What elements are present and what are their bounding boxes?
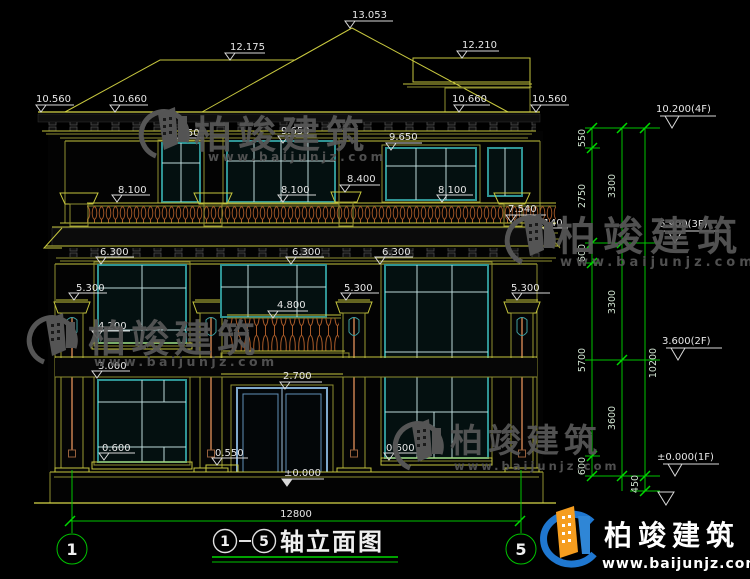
floor-level-2f: 3.600(2F) bbox=[662, 336, 711, 347]
window-3f-end bbox=[488, 148, 522, 196]
level-label-cap-left: 5.300 bbox=[76, 283, 105, 294]
dim-5700: 5700 bbox=[577, 348, 588, 372]
watermark-brand: 柏竣建筑 bbox=[556, 214, 744, 260]
dim-3600: 3600 bbox=[607, 406, 618, 430]
level-label-rail3-mid: 8.100 bbox=[281, 185, 310, 196]
title-text: 轴立面图 bbox=[280, 528, 384, 556]
level-label-cap-right: 5.300 bbox=[511, 283, 540, 294]
level-label-ridge-right: 12.210 bbox=[462, 40, 497, 51]
level-label-cap-mid: 5.300 bbox=[344, 283, 373, 294]
dim-3300-a: 3300 bbox=[607, 174, 618, 198]
level-label-eave-far-right: 10.560 bbox=[532, 94, 567, 105]
watermark-url: www.baijunjz.com bbox=[94, 354, 278, 369]
brand-url: www.baijunjz.com bbox=[602, 556, 750, 572]
brand-logo-icon bbox=[544, 506, 594, 564]
level-label-rail3-left: 8.100 bbox=[118, 185, 147, 196]
level-label-sill-right: 0.600 bbox=[386, 443, 415, 454]
brand-name: 柏竣建筑 bbox=[604, 519, 740, 552]
level-label-entry-floor: ±0.000 bbox=[284, 468, 321, 479]
dim-450: 450 bbox=[630, 475, 641, 493]
footer-logo: 柏竣建筑 www.baijunjz.com bbox=[544, 506, 750, 572]
watermark-url: www.baijunjz.com bbox=[208, 150, 387, 164]
level-label-eave-left: 10.660 bbox=[112, 94, 147, 105]
level-label-balcony-rail: 4.800 bbox=[277, 300, 306, 311]
axis-bubble-1-label: 1 bbox=[66, 540, 77, 559]
level-label-rail3-bottom: 7.540 bbox=[508, 204, 537, 215]
balusters-3f bbox=[87, 206, 556, 223]
dim-3300-b: 3300 bbox=[607, 290, 618, 314]
watermark-url: www.baijunjz.com bbox=[560, 255, 750, 270]
dim-550: 550 bbox=[577, 129, 588, 147]
watermark-url: www.baijunjz.com bbox=[454, 459, 619, 473]
axis-bubble-5-label: 5 bbox=[515, 540, 526, 559]
floor-level-4f: 10.200(4F) bbox=[656, 104, 711, 115]
level-label-door-top: 2.700 bbox=[283, 371, 312, 382]
elevation-drawing: 13.053 12.175 12.210 10.560 10.660 10.66… bbox=[0, 0, 750, 579]
level-label-win2-left: 6.300 bbox=[100, 247, 129, 258]
window-2f-center bbox=[221, 265, 326, 317]
level-label-sill-left: 0.600 bbox=[102, 443, 131, 454]
level-label-ridge: 13.053 bbox=[352, 10, 387, 21]
level-label-win3-right: 9.650 bbox=[389, 132, 418, 143]
level-label-porch-ledge: 0.550 bbox=[215, 448, 244, 459]
roof-valley-line bbox=[202, 28, 352, 112]
level-label-eave-far-left: 10.560 bbox=[36, 94, 71, 105]
dim-10200: 10200 bbox=[648, 348, 659, 378]
dim-2750: 2750 bbox=[577, 184, 588, 208]
dim-12800: 12800 bbox=[280, 509, 312, 520]
level-label-win2-right: 6.300 bbox=[382, 247, 411, 258]
cad-canvas: 13.053 12.175 12.210 10.560 10.660 10.66… bbox=[0, 0, 750, 579]
ground-level-marker bbox=[658, 492, 674, 505]
level-label-rail3-right: 8.100 bbox=[438, 185, 467, 196]
level-label-eave-right: 10.660 bbox=[452, 94, 487, 105]
title-axis-start: 1 bbox=[220, 534, 230, 550]
title-axis-end: 5 bbox=[259, 534, 269, 550]
floor-level-1f: ±0.000(1F) bbox=[657, 452, 714, 463]
level-label-win2-mid: 6.300 bbox=[292, 247, 321, 258]
watermark-brand: 柏竣建筑 bbox=[450, 421, 602, 460]
drawing-title: 1 5 轴立面图 bbox=[212, 528, 398, 562]
level-label-ridge-left: 12.175 bbox=[230, 42, 265, 53]
level-label-pedestal3: 8.400 bbox=[347, 174, 376, 185]
